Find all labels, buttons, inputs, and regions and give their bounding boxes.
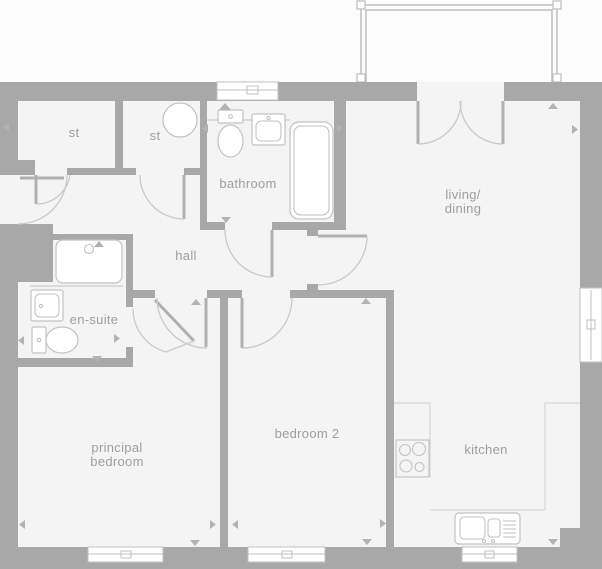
label-kitchen: kitchen	[464, 443, 507, 457]
window-bedroom2	[248, 547, 325, 562]
basin-ensuite	[31, 290, 63, 321]
bath-tub	[290, 122, 333, 219]
basin-bathroom	[252, 114, 285, 145]
window-bathroom	[217, 82, 278, 100]
front-door-opening	[0, 175, 18, 224]
label-st1: st	[69, 126, 80, 140]
label-living-dining: living/ dining	[445, 188, 482, 216]
label-bedroom2: bedroom 2	[275, 427, 340, 441]
label-hall: hall	[175, 249, 196, 263]
label-bathroom: bathroom	[219, 177, 276, 191]
balcony	[357, 1, 561, 82]
window-principal-bedroom	[88, 547, 163, 562]
toilet-bathroom	[218, 110, 243, 157]
label-st2: st	[150, 129, 161, 143]
label-ensuite: en-suite	[70, 313, 119, 327]
label-principal-bedroom-line1: principal	[90, 441, 143, 455]
floor-plan-drawing	[0, 0, 602, 569]
kitchen-sink	[455, 513, 520, 544]
french-door-opening	[417, 82, 504, 101]
floor-plan: st st bathroom hall en-suite living/ din…	[0, 0, 602, 569]
window-kitchen	[462, 547, 517, 562]
window-living-right	[580, 288, 602, 362]
label-living-dining-line1: living/	[445, 188, 482, 202]
label-living-dining-line2: dining	[445, 202, 482, 216]
label-principal-bedroom: principal bedroom	[90, 441, 143, 469]
water-tank	[163, 103, 197, 137]
toilet-ensuite	[32, 327, 78, 353]
label-principal-bedroom-line2: bedroom	[90, 455, 143, 469]
shower-tray	[56, 240, 122, 283]
